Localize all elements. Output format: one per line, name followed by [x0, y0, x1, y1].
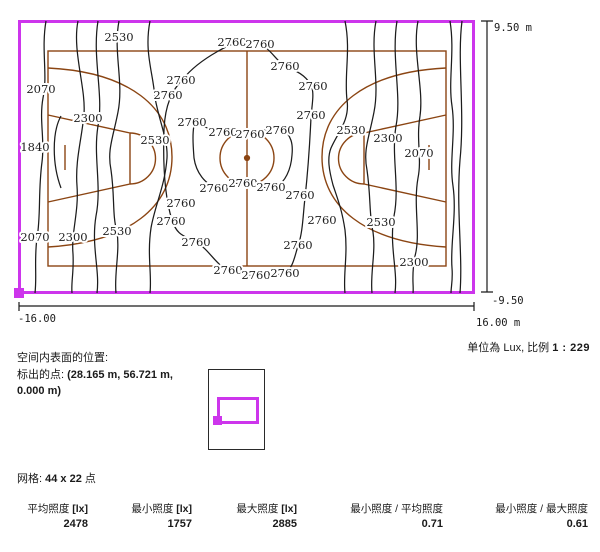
thumbnail-origin-marker [213, 416, 222, 425]
contour-line-1840 [54, 116, 61, 188]
contour-value-label: 2760 [166, 73, 195, 87]
stat-value: 0.61 [475, 518, 588, 530]
stat-avg-illuminance: 平均照度 [lx] 2478 [10, 501, 88, 530]
contour-value-label: 2530 [102, 224, 131, 238]
stat-min-over-avg: 最小照度 / 平均照度 0.71 [330, 501, 443, 530]
surface-position-title: 空间内表面的位置: [17, 350, 222, 367]
stat-min-illuminance: 最小照度 [lx] 1757 [110, 501, 192, 530]
contour-value-label: 2760 [177, 115, 206, 129]
dim-label-left: -16.00 [18, 313, 56, 325]
contour-value-label: 2760 [270, 266, 299, 280]
stat-max-illuminance: 最大照度 [lx] 2885 [215, 501, 297, 530]
surface-origin-marker [14, 288, 24, 298]
isolux-plot: 2530207023001840253020702300253027602760… [0, 0, 600, 335]
contour-value-label: 2760 [241, 268, 270, 282]
thumbnail-surface-rect [217, 397, 259, 424]
contour-value-label: 2070 [404, 146, 433, 160]
contour-value-label: 2530 [104, 30, 133, 44]
contour-line [35, 21, 46, 293]
dim-label-right: 16.00 m [476, 317, 520, 329]
court-right-freethrow-arc [339, 133, 365, 184]
stat-value: 1757 [110, 518, 192, 530]
dim-label-bottom: -9.50 [492, 295, 524, 307]
contour-value-label: 2760 [217, 35, 246, 49]
contour-value-label: 2760 [245, 37, 274, 51]
contour-value-label: 2760 [199, 181, 228, 195]
court-left-key [48, 115, 130, 202]
contour-line [72, 21, 84, 293]
contour-value-label: 2760 [265, 123, 294, 137]
stat-label: 最小照度 / 最大照度 [495, 503, 588, 515]
contour-value-label: 2300 [399, 255, 428, 269]
contour-value-label: 2300 [73, 111, 102, 125]
grid-info: 网格: 44 x 22 点 [17, 470, 96, 486]
contour-value-label: 2760 [235, 127, 264, 141]
stat-label: 最小照度 / 平均照度 [350, 503, 443, 515]
unit-scale-prefix: 单位為 Lux, 比例 [467, 342, 549, 354]
contour-value-label: 2760 [283, 238, 312, 252]
contour-value-label: 2300 [58, 230, 87, 244]
stat-label: 最大照度 [lx] [236, 503, 297, 515]
unit-scale-label: 单位為 Lux, 比例 1 : 229 [467, 339, 590, 355]
contour-value-label: 2760 [166, 196, 195, 210]
room-overview-thumbnail [208, 369, 265, 450]
contour-line [366, 21, 376, 293]
surface-position-block: 空间内表面的位置: 标出的点: (28.165 m, 56.721 m, 0.0… [17, 350, 222, 400]
contour-labels: 2530207023001840253020702300253027602760… [20, 30, 433, 282]
contour-value-label: 2760 [307, 213, 336, 227]
contour-value-label: 2760 [213, 263, 242, 277]
contour-value-label: 2760 [181, 235, 210, 249]
contour-value-label: 2760 [270, 59, 299, 73]
stat-value: 2478 [10, 518, 88, 530]
stat-min-over-max: 最小照度 / 最大照度 0.61 [475, 501, 588, 530]
stat-value: 0.71 [330, 518, 443, 530]
stat-value: 2885 [215, 518, 297, 530]
contour-value-label: 2760 [156, 214, 185, 228]
contour-line [110, 21, 120, 293]
surface-marked-point: 标出的点: (28.165 m, 56.721 m, [17, 367, 222, 384]
contour-value-label: 2760 [285, 188, 314, 202]
contour-value-label: 2530 [140, 133, 169, 147]
contour-line [94, 21, 99, 293]
stat-label: 平均照度 [lx] [27, 503, 88, 515]
contour-value-label: 1840 [20, 140, 49, 154]
contour-line [450, 21, 454, 293]
contour-line [392, 21, 397, 293]
contour-value-label: 2760 [256, 180, 285, 194]
contour-value-label: 2070 [20, 230, 49, 244]
contour-value-label: 2300 [373, 131, 402, 145]
contour-value-label: 2530 [366, 215, 395, 229]
dim-label-top: 9.50 m [494, 22, 532, 34]
contour-value-label: 2530 [336, 123, 365, 137]
contour-line [459, 21, 462, 293]
court-center-dot [245, 156, 250, 161]
contour-value-label: 2760 [153, 88, 182, 102]
contour-value-label: 2760 [208, 125, 237, 139]
dialux-isolux-report-page: 2530207023001840253020702300253027602760… [0, 0, 600, 552]
contour-value-label: 2760 [228, 176, 257, 190]
contour-value-label: 2760 [298, 79, 327, 93]
surface-marked-point-z: 0.000 m) [17, 383, 222, 400]
contour-value-label: 2760 [296, 108, 325, 122]
stat-label: 最小照度 [lx] [131, 503, 192, 515]
contour-value-label: 2070 [26, 82, 55, 96]
unit-scale-value: 1 : 229 [552, 342, 590, 354]
